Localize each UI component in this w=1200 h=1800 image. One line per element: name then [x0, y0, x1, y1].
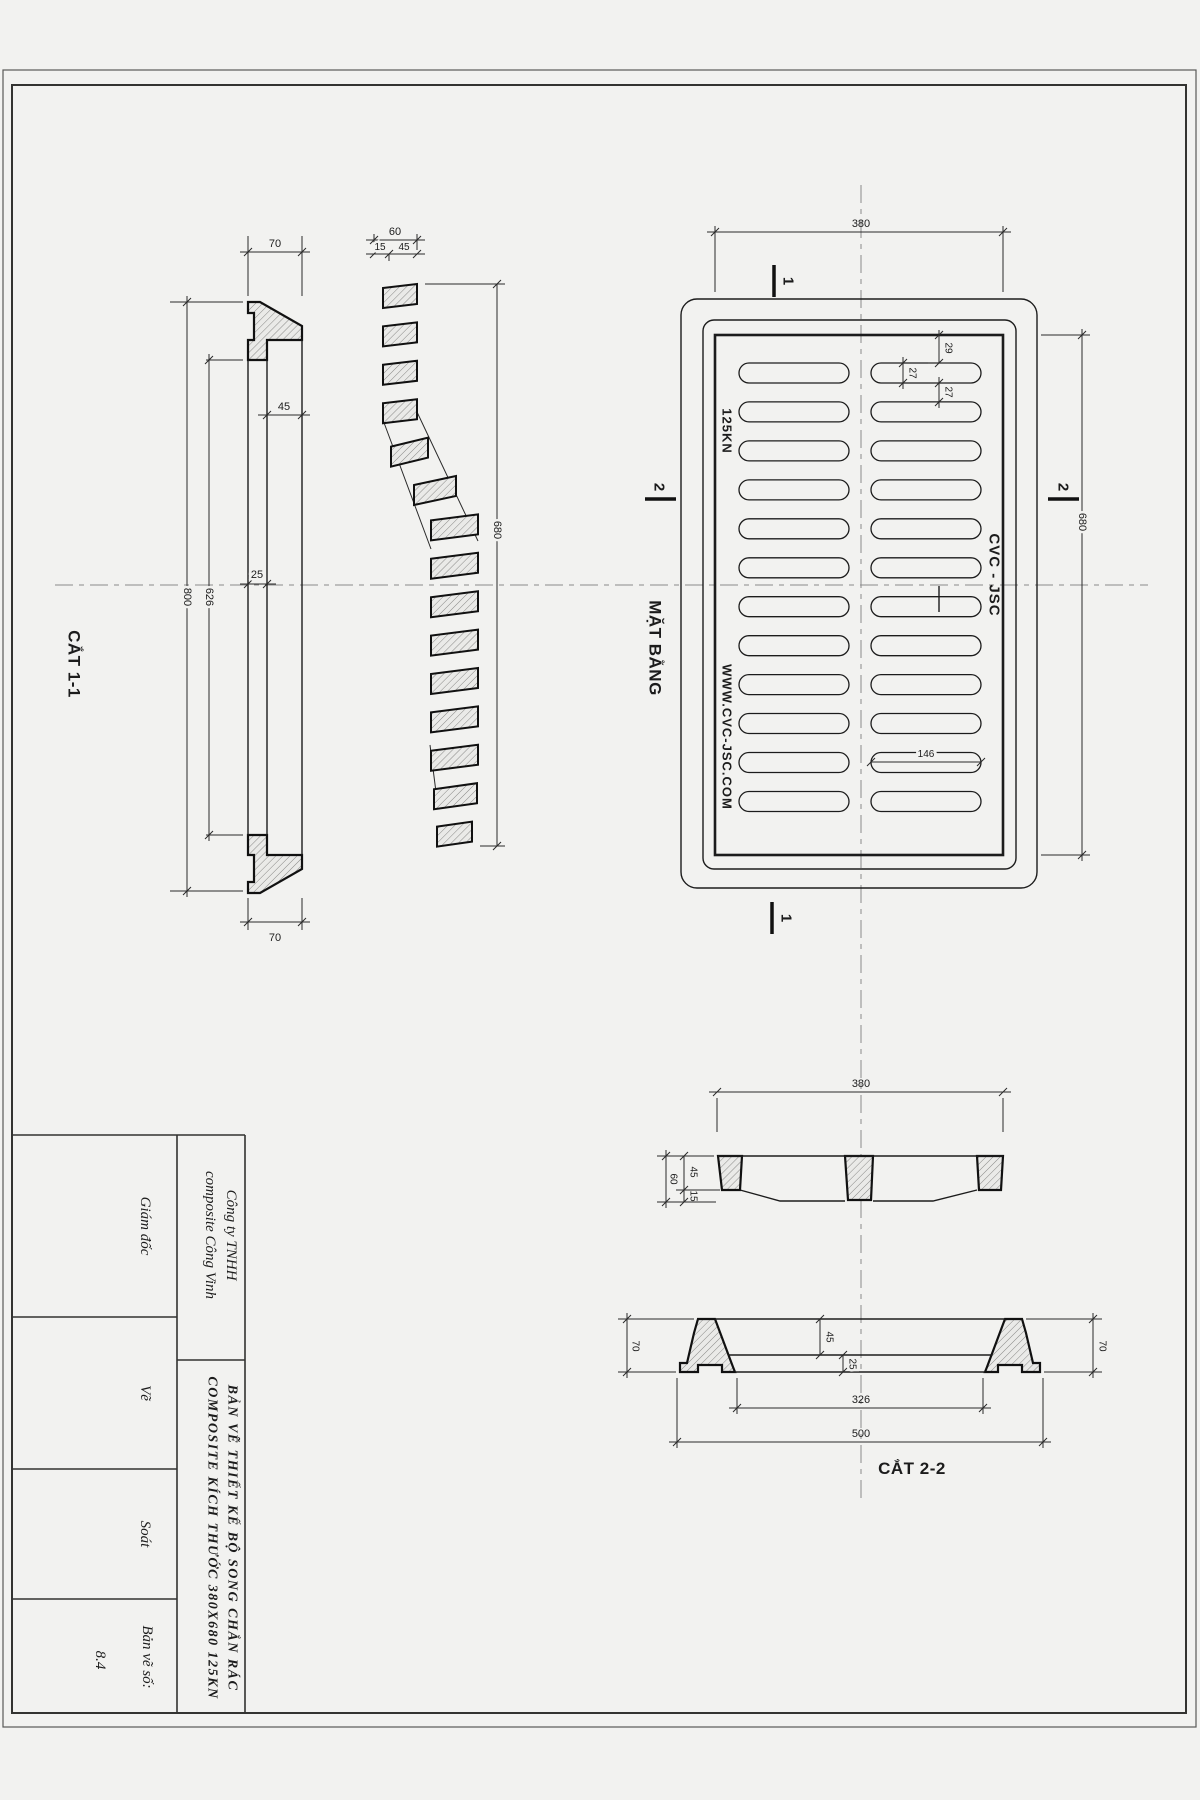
lid-bar-left: [718, 1156, 742, 1190]
dim-70-bottom: [240, 898, 310, 930]
grate-slot: [739, 792, 849, 812]
role-drawn-label: Vẽ: [137, 1385, 153, 1401]
dim-25-value: 25: [251, 569, 263, 581]
lid-bar-section: [383, 361, 417, 385]
dim-380-cat22: [709, 1088, 1011, 1132]
grate-slot: [871, 558, 981, 578]
plan-view-title: MẶT BẰNG: [646, 600, 665, 696]
grate-slot: [739, 675, 849, 695]
dim-45b-value: 45: [398, 242, 410, 253]
dim-70-right-value: 70: [1097, 1340, 1108, 1352]
dim-15-value: 15: [374, 242, 386, 253]
dim-70-bottom-value: 70: [269, 932, 281, 944]
section-marker-1-top-label: 1: [780, 277, 797, 285]
dim-380-plan: [707, 226, 1011, 292]
drawing-sheet: 70 70 800 626 45 25 CẮT 1-1 60 15 45 680…: [0, 0, 1200, 1800]
lid-bar-center: [845, 1156, 873, 1200]
dim-326-value: 326: [852, 1394, 870, 1406]
dim-60-cat22-value: 60: [668, 1173, 679, 1185]
dim-45-cat22-value: 45: [688, 1166, 699, 1178]
grate-slot: [739, 597, 849, 617]
dim-27-gap: [935, 377, 943, 408]
grate-slot: [739, 402, 849, 422]
dim-29-value: 29: [943, 342, 954, 354]
dim-70-top-value: 70: [269, 238, 281, 250]
title-block: Giám đốc Vẽ Soát Bản vẽ số: 8.4 Công ty …: [12, 1135, 245, 1713]
grate-slot: [739, 753, 849, 773]
dim-500-value: 500: [852, 1428, 870, 1440]
grate-slot: [739, 636, 849, 656]
dim-626-value: 626: [203, 588, 215, 606]
dim-45-seat-value: 45: [824, 1331, 835, 1343]
lid-bar-section: [431, 514, 478, 540]
drawing-title-line1: BẢN VẼ THIẾT KẾ BỘ SONG CHẮN RÁC: [225, 1384, 243, 1692]
dim-27-slot: [899, 357, 907, 389]
dim-45-seat: [816, 1315, 824, 1359]
lid-bar-section: [431, 630, 478, 656]
dim-680-lid-value: 680: [491, 521, 503, 539]
plan-view: 125KN CVC - JSC WWW.CVC-JSC.COM 380 680 …: [645, 218, 1090, 934]
lid-bar-section: [431, 668, 478, 694]
grate-slot: [739, 441, 849, 461]
frame-rim-lines: [715, 1319, 1005, 1372]
grate-slot: [871, 792, 981, 812]
lid-bar-section: [437, 822, 472, 847]
drawing-title-line2: COMPOSITE KÍCH THƯỚC 380X680 125KN: [205, 1376, 222, 1699]
grate-slot: [871, 519, 981, 539]
outer-border: [3, 70, 1196, 1727]
grate-panel-outline: [715, 335, 1003, 855]
dim-15-cat22-value: 15: [688, 1190, 699, 1202]
lid-bar-section: [383, 399, 417, 423]
dim-380-cat22-value: 380: [852, 1078, 870, 1090]
dim-45-value: 45: [278, 401, 290, 413]
role-checked-label: Soát: [137, 1521, 153, 1549]
frame-profile-right: [985, 1319, 1040, 1372]
grate-slot: [871, 363, 981, 383]
dim-680-plan: [1041, 329, 1090, 861]
company-name-line1: Công ty TNHH: [223, 1190, 239, 1282]
section-marker-1-bottom-label: 1: [778, 914, 795, 922]
section-2-2-title: CẮT 2-2: [878, 1459, 946, 1478]
cad-canvas: 70 70 800 626 45 25 CẮT 1-1 60 15 45 680…: [0, 0, 1200, 1800]
grate-slot: [739, 519, 849, 539]
section-2-2-view: 380 60 45 15 45 25 70 70 326 500 CẮT 2-2: [618, 1078, 1108, 1478]
grate-slot: [871, 714, 981, 734]
lid-bar-section: [434, 783, 477, 809]
section-1-1-title: CẮT 1-1: [65, 630, 84, 698]
drawing-number-value: 8.4: [92, 1651, 108, 1670]
frame-end-profile-bottom: [248, 835, 302, 893]
dim-680-plan-value: 680: [1076, 513, 1088, 531]
grate-slot: [871, 675, 981, 695]
dim-25-base-value: 25: [847, 1358, 858, 1370]
role-director-label: Giám đốc: [137, 1197, 153, 1256]
section-marker-2-right-label: 2: [1055, 483, 1072, 491]
drawing-number-label: Bản vẽ số:: [139, 1625, 155, 1688]
dim-380-plan-value: 380: [852, 218, 870, 230]
lid-bar-section: [431, 745, 478, 771]
website-marking: WWW.CVC-JSC.COM: [720, 664, 735, 810]
lid-side-view: 60 15 45 680: [366, 226, 505, 850]
grate-slot: [871, 597, 981, 617]
lid-bar-section: [414, 476, 456, 505]
grate-slot: [871, 402, 981, 422]
load-rating-marking: 125KN: [720, 408, 735, 453]
frame-profile-left: [680, 1319, 735, 1372]
grate-slot: [739, 714, 849, 734]
dim-146-value: 146: [918, 749, 935, 760]
dim-27-slot-value: 27: [907, 367, 918, 379]
section-1-1-view: 70 70 800 626 45 25 CẮT 1-1: [65, 236, 311, 944]
lid-bar-section: [383, 284, 417, 308]
dim-27-gap-value: 27: [943, 386, 954, 398]
grate-slot: [739, 558, 849, 578]
dim-60-value: 60: [389, 226, 401, 238]
lid-bars: [383, 284, 478, 847]
brand-marking: CVC - JSC: [986, 533, 1003, 616]
lid-bar-section: [391, 438, 428, 467]
lid-bar-section: [431, 706, 478, 732]
grate-slot: [739, 363, 849, 383]
plan-slots: [739, 363, 981, 812]
lid-bar-section: [431, 591, 478, 617]
lid-bar-section: [431, 553, 478, 579]
grate-slot: [871, 636, 981, 656]
grate-slot: [739, 480, 849, 500]
dim-70-left-value: 70: [630, 1340, 641, 1352]
frame-end-profile-top: [248, 302, 302, 360]
dim-800-value: 800: [181, 588, 193, 606]
inner-border: [12, 85, 1186, 1713]
dim-25: [240, 580, 276, 588]
frame-rails: [248, 340, 302, 855]
grate-slot: [871, 441, 981, 461]
section-marker-2-left-label: 2: [651, 483, 668, 491]
company-name-line2: composite Công Vinh: [202, 1171, 218, 1299]
lid-bar-right: [977, 1156, 1003, 1190]
lid-bar-section: [383, 322, 417, 346]
grate-slot: [871, 480, 981, 500]
